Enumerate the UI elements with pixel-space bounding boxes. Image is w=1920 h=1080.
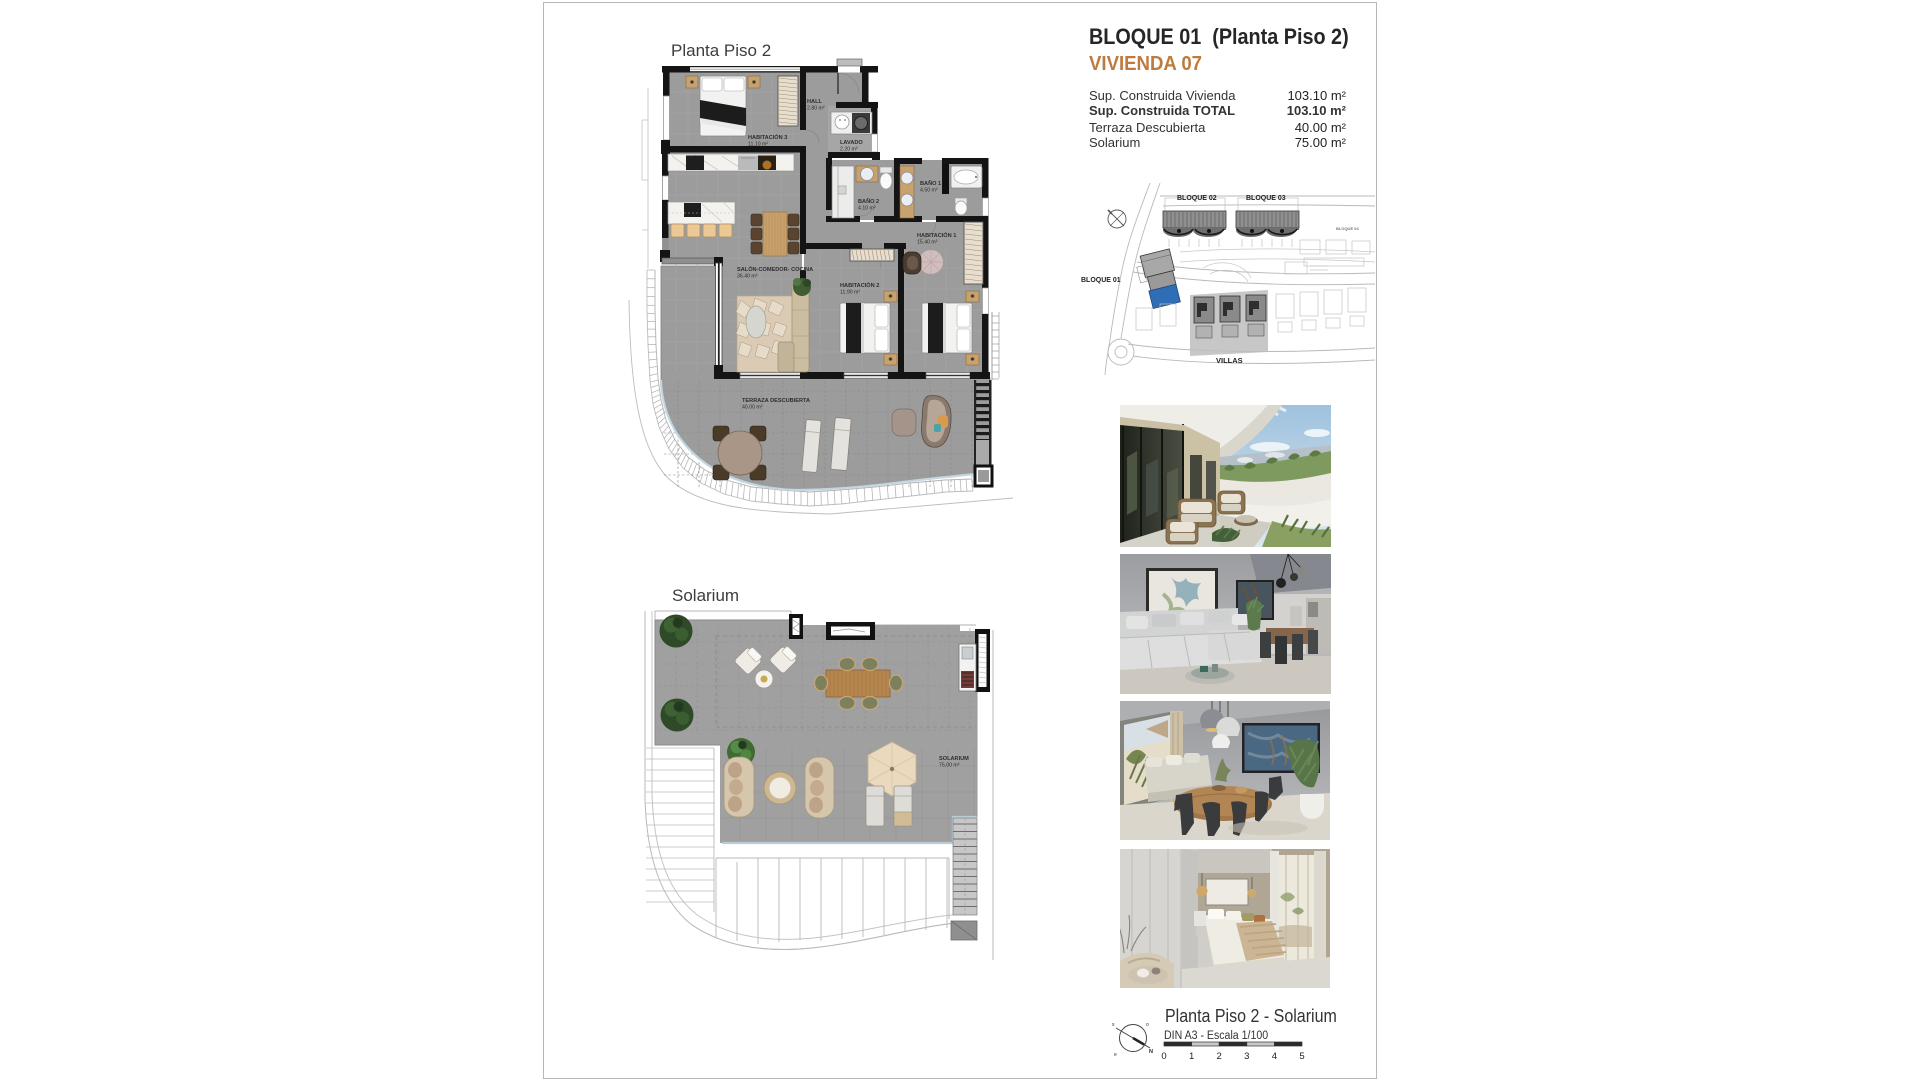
svg-text:40.00 m²: 40.00 m²	[742, 405, 763, 411]
svg-text:s: s	[1112, 1022, 1115, 1028]
svg-text:N: N	[1149, 1049, 1153, 1055]
svg-text:BAÑO 2: BAÑO 2	[858, 198, 879, 205]
svg-text:4.10 m²: 4.10 m²	[858, 206, 876, 212]
svg-text:BLOQUE 03: BLOQUE 03	[1246, 195, 1286, 202]
svg-text:SALÓN-COMEDOR- COCINA: SALÓN-COMEDOR- COCINA	[737, 265, 813, 273]
svg-text:11.90 m²: 11.90 m²	[840, 290, 860, 296]
svg-text:75,00 m²: 75,00 m²	[939, 763, 960, 769]
svg-text:BLOQUE 04: BLOQUE 04	[1336, 226, 1359, 231]
svg-text:2.20 m²: 2.20 m²	[840, 147, 858, 153]
svg-text:BLOQUE 01: BLOQUE 01	[1081, 277, 1121, 284]
svg-text:TERRAZA DESCUBIERTA: TERRAZA DESCUBIERTA	[742, 398, 810, 404]
svg-text:4.50 m²: 4.50 m²	[920, 188, 938, 194]
svg-text:1: 1	[1189, 1051, 1194, 1062]
svg-text:BAÑO 1: BAÑO 1	[920, 180, 941, 187]
svg-text:15.40 m²: 15.40 m²	[917, 240, 938, 246]
svg-text:36.40 m²: 36.40 m²	[737, 274, 758, 280]
svg-text:HALL: HALL	[807, 99, 822, 105]
svg-text:11.10 m²: 11.10 m²	[748, 142, 768, 148]
svg-text:LAVADO: LAVADO	[840, 140, 863, 146]
svg-text:e: e	[1114, 1052, 1117, 1058]
svg-text:4: 4	[1272, 1051, 1277, 1062]
svg-text:HABITACIÓN 1: HABITACIÓN 1	[917, 231, 956, 239]
svg-text:BLOQUE 02: BLOQUE 02	[1177, 195, 1217, 202]
svg-text:SOLARIUM: SOLARIUM	[939, 756, 969, 762]
svg-text:5: 5	[1299, 1051, 1304, 1062]
svg-text:VILLAS: VILLAS	[1216, 356, 1243, 365]
svg-text:3: 3	[1244, 1051, 1249, 1062]
svg-text:0: 0	[1161, 1051, 1166, 1062]
svg-text:HABITACIÓN 3: HABITACIÓN 3	[748, 133, 787, 141]
svg-text:2: 2	[1217, 1051, 1222, 1062]
svg-text:o: o	[1146, 1022, 1149, 1028]
svg-text:HABITACIÓN 2: HABITACIÓN 2	[840, 281, 879, 289]
svg-text:2.80 m²: 2.80 m²	[807, 106, 825, 112]
